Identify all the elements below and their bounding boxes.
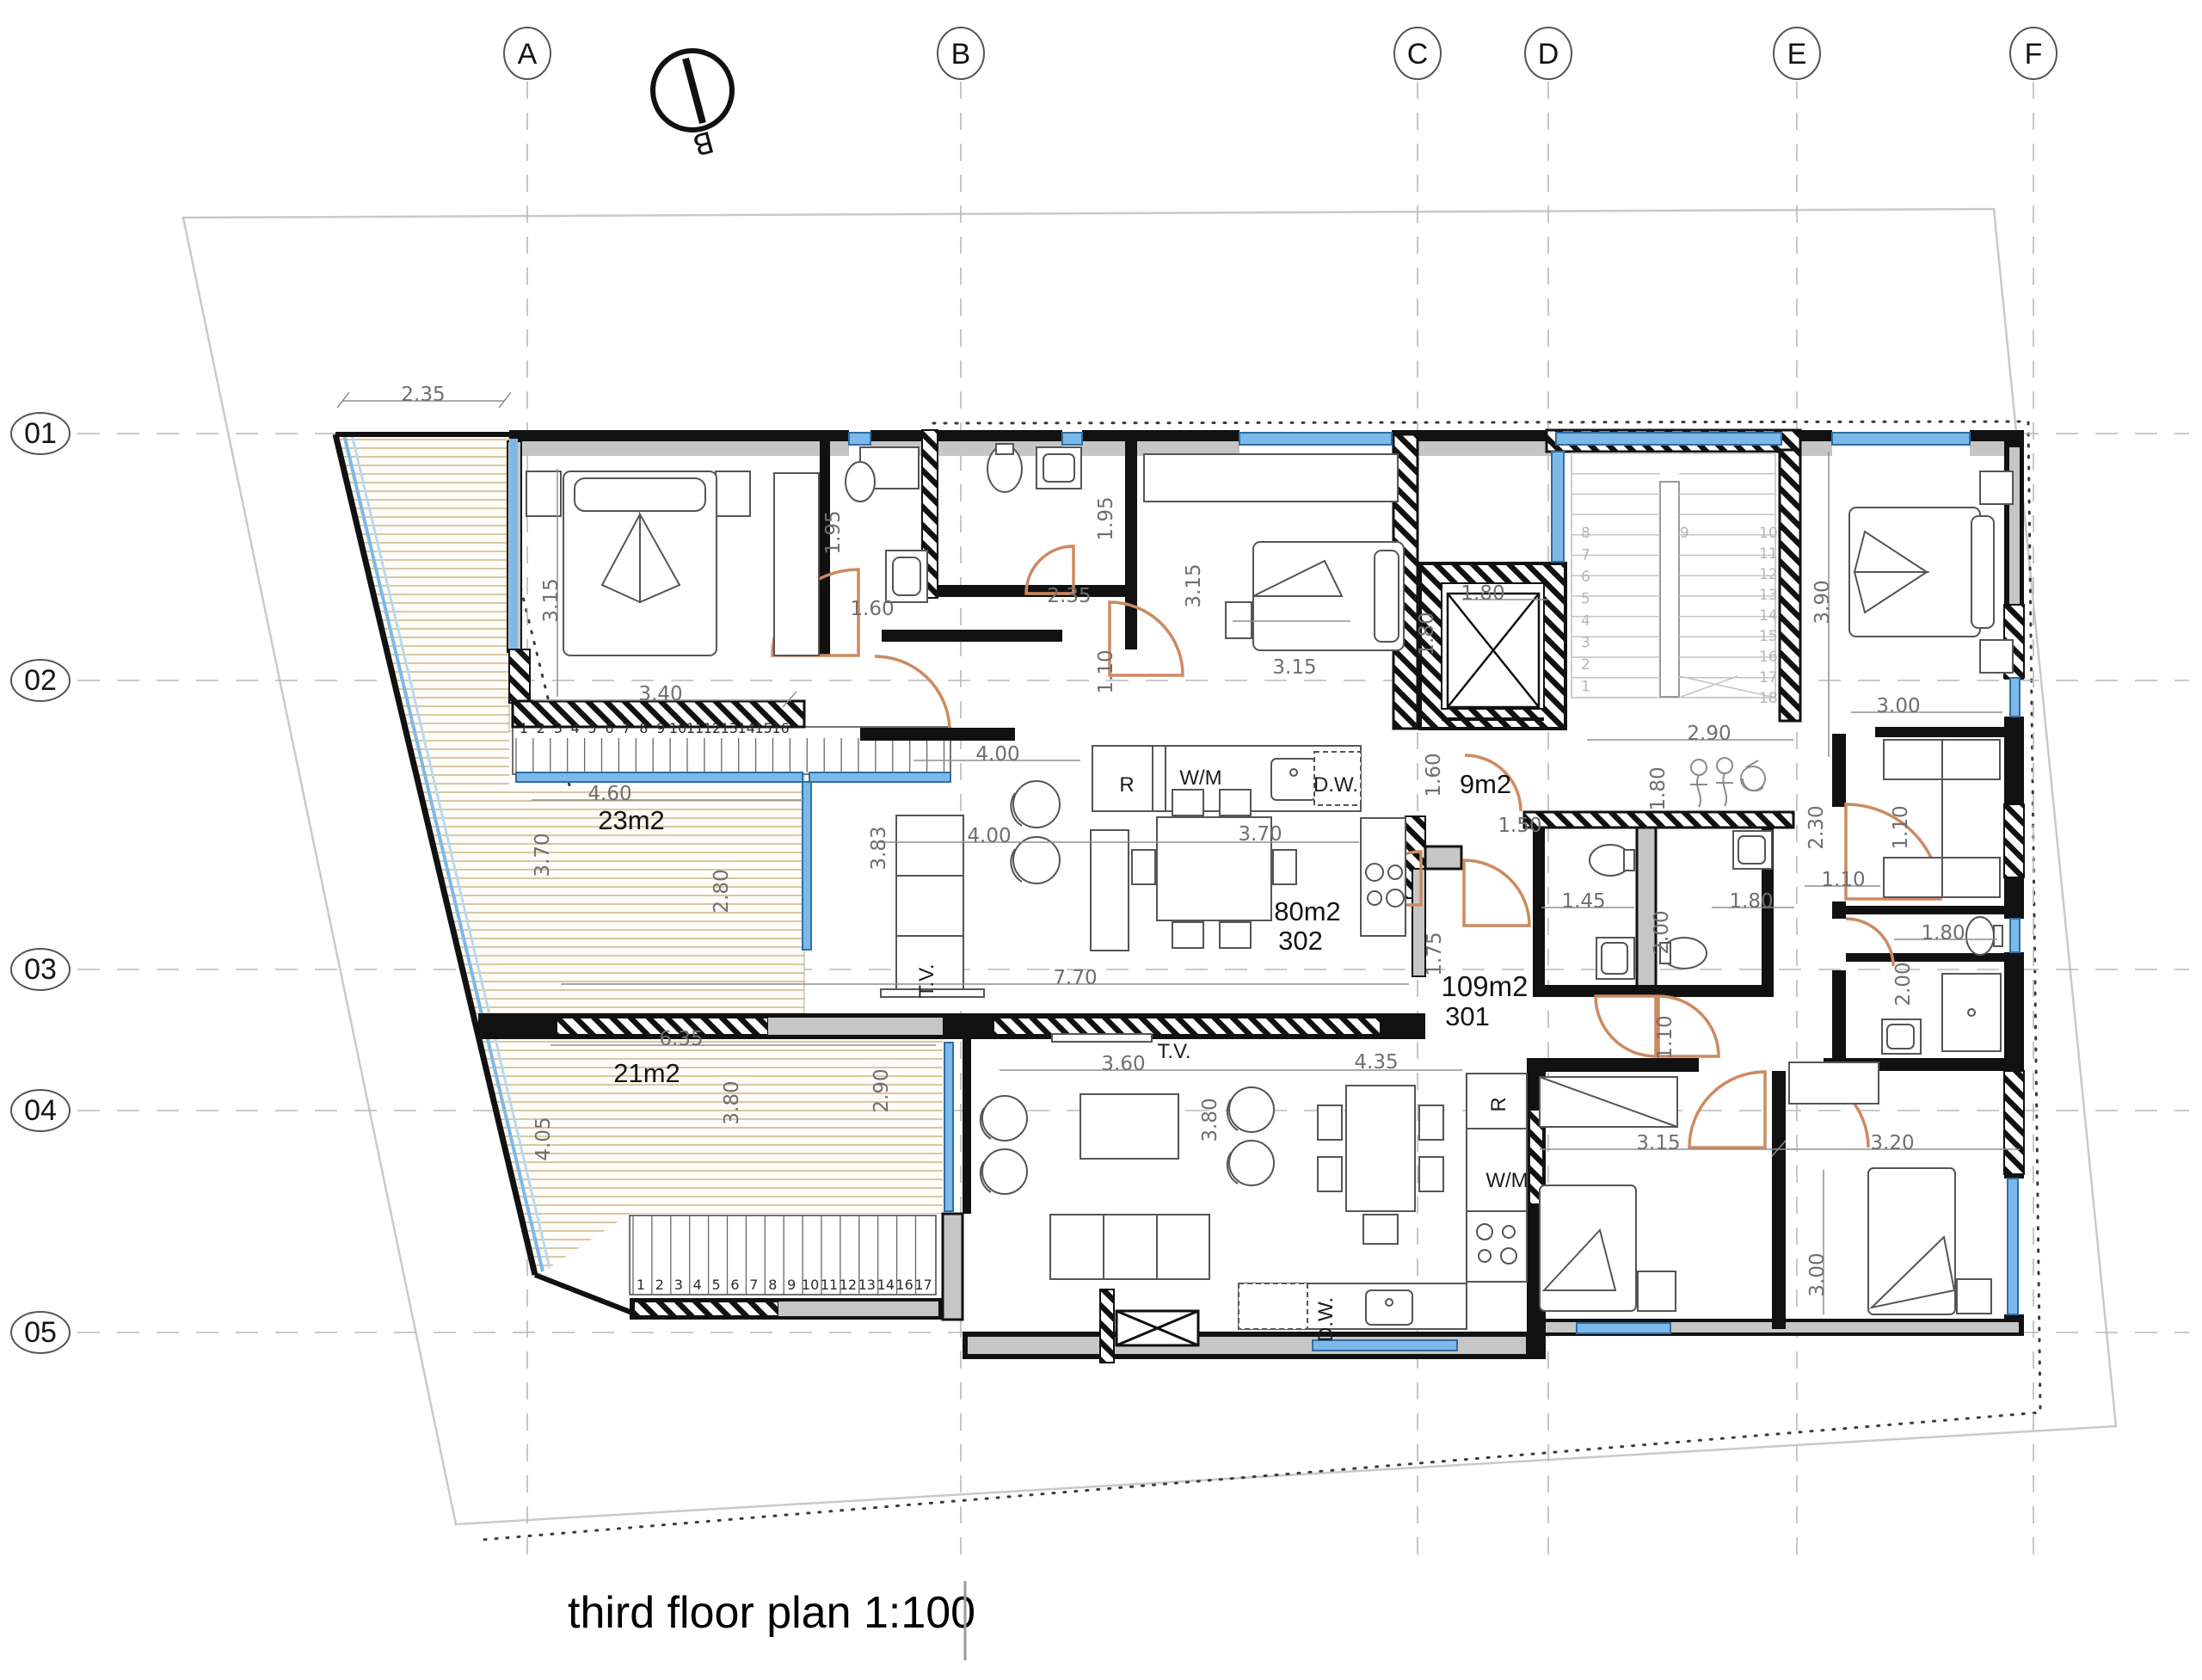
dimension-label: 6.35 xyxy=(659,1028,703,1050)
louvre-number: 2 xyxy=(655,1277,664,1293)
louvre-number: 5 xyxy=(712,1277,721,1293)
louvre-number: 17 xyxy=(914,1277,932,1293)
stair-number: 7 xyxy=(1581,547,1590,564)
dimension-label: 1.95 xyxy=(1095,496,1117,540)
louvre-number: 13 xyxy=(721,720,738,736)
stair-number: 9 xyxy=(1680,525,1689,542)
stair-number: 12 xyxy=(1759,566,1778,583)
stair-number: 2 xyxy=(1581,656,1590,674)
grid-col-label: E xyxy=(1787,38,1807,71)
service-shaft xyxy=(1116,1311,1198,1345)
room-label: 109m2 xyxy=(1442,970,1528,1002)
stair-number: 18 xyxy=(1759,690,1778,707)
grid-col-label: D xyxy=(1538,38,1559,71)
louvre-number: 10 xyxy=(802,1277,819,1293)
grid-row-label: 04 xyxy=(24,1094,57,1127)
north-label: B xyxy=(689,124,717,163)
stair-number: 11 xyxy=(1759,545,1778,563)
room-label: 9m2 xyxy=(1460,769,1511,799)
stair-number: 5 xyxy=(1581,591,1590,608)
accessibility-figures-icon xyxy=(1690,758,1765,807)
room-label: 23m2 xyxy=(598,805,665,835)
dimension-label: 1.80 xyxy=(1647,766,1670,810)
louvre-number: 3 xyxy=(554,720,563,736)
louvre-number: 16 xyxy=(895,1277,913,1293)
louvre-number: 7 xyxy=(749,1277,758,1293)
dimension-label: 1.60 xyxy=(1423,753,1445,797)
grid-col-label: B xyxy=(951,38,971,71)
louvre-number: 2 xyxy=(537,720,545,736)
dimension-label: 3.83 xyxy=(868,826,890,870)
dimension-label: 2.35 xyxy=(401,384,445,406)
dimension-label: 1.80 xyxy=(1921,922,1965,945)
louvre-number: 12 xyxy=(840,1277,857,1293)
louvre-number: 6 xyxy=(730,1277,739,1293)
stair-number: 17 xyxy=(1759,669,1778,686)
stair-number: 13 xyxy=(1759,587,1778,604)
dimension-label: 1.95 xyxy=(822,510,845,554)
dining302 xyxy=(1132,790,1296,948)
title-text: third floor plan 1:100 xyxy=(568,1588,975,1638)
louvre-number: 12 xyxy=(704,720,721,736)
dimension-label: 1.75 xyxy=(1424,932,1446,975)
stair-number: 16 xyxy=(1759,649,1778,666)
room-label: 80m2 xyxy=(1274,896,1341,926)
dimension-label: 2.35 xyxy=(1047,585,1091,607)
dimension-label: 3.15 xyxy=(540,578,563,622)
louvre-number: 16 xyxy=(772,720,789,736)
appliance-label: T.V. xyxy=(915,963,938,997)
bedroom-301-left xyxy=(1540,1077,1677,1311)
dimension-label: 3.15 xyxy=(1636,1132,1680,1154)
dimension-label: 1.10 xyxy=(1821,869,1865,891)
dimension-label: 2.80 xyxy=(710,869,733,913)
room-label: 302 xyxy=(1278,926,1323,956)
grid-row-label: 03 xyxy=(24,953,57,986)
dimension-label: 4.35 xyxy=(1354,1051,1398,1074)
appliance-label: R xyxy=(1119,773,1134,797)
dimension-label: 1.80 xyxy=(1461,582,1504,605)
appliance-label: D.W. xyxy=(1313,773,1358,797)
dimension-label: 2.90 xyxy=(1687,723,1731,745)
grid-col-label: F xyxy=(2025,38,2043,71)
louvre-number: 4 xyxy=(571,720,580,736)
grid-row-label: 05 xyxy=(24,1316,57,1349)
louvre-number: 4 xyxy=(693,1277,702,1293)
appliance-label: R xyxy=(1487,1097,1510,1111)
dining-lower xyxy=(1318,1086,1443,1244)
dimension-label: 3.00 xyxy=(1876,695,1920,717)
appliance-label: T.V. xyxy=(1157,1040,1190,1063)
stair-number: 15 xyxy=(1759,628,1778,645)
grid-col-label: A xyxy=(518,38,538,71)
louvre-number: 9 xyxy=(656,720,665,736)
dimension-label: 3.80 xyxy=(721,1080,743,1124)
louvre-number: 11 xyxy=(821,1277,838,1293)
dimension-label: 2.00 xyxy=(1892,962,1915,1006)
stair-number: 8 xyxy=(1581,525,1590,542)
dimension-label: 4.00 xyxy=(967,825,1011,847)
dimension-label: 1.10 xyxy=(1095,649,1117,693)
dimension-label: 4.60 xyxy=(587,783,631,805)
dimension-label: 3.15 xyxy=(1272,656,1316,679)
dimension-label: 1.60 xyxy=(850,598,894,620)
dimension-label: 4.00 xyxy=(975,743,1019,766)
louvre-number: 14 xyxy=(738,720,755,736)
louvre-number: 6 xyxy=(605,720,613,736)
stair-number: 6 xyxy=(1581,569,1590,586)
grid-row-label: 02 xyxy=(24,664,57,697)
dimension-label: 2.30 xyxy=(1805,805,1828,849)
stair-number: 4 xyxy=(1581,612,1590,630)
bedroomF-furniture xyxy=(1849,471,2013,673)
dimension-label: 4.05 xyxy=(532,1117,555,1160)
stair-number: 3 xyxy=(1581,635,1590,652)
dimension-label: 3.15 xyxy=(1183,563,1205,607)
louvre-number: 9 xyxy=(787,1277,796,1293)
louvre-number: 8 xyxy=(768,1277,777,1293)
louvre-number: 1 xyxy=(520,720,528,736)
dimension-label: 1.45 xyxy=(1561,890,1605,913)
dimension-label: 3.80 xyxy=(1199,1098,1221,1142)
louvre-number: 7 xyxy=(622,720,630,736)
dimension-label: 7.70 xyxy=(1053,967,1097,989)
dimension-label: 2.90 xyxy=(870,1068,893,1112)
stair-number: 10 xyxy=(1759,525,1778,542)
dimension-label: 1.10 xyxy=(1654,1015,1676,1059)
appliance-label: W/M xyxy=(1179,766,1221,790)
dimension-label: 1.50 xyxy=(1498,815,1541,837)
louvre-number: 5 xyxy=(588,720,597,736)
room-label: 21m2 xyxy=(613,1058,680,1088)
appliance-label: D.W. xyxy=(1314,1297,1338,1342)
dimension-label: 1.10 xyxy=(1890,805,1912,849)
dimension-label: 2.00 xyxy=(1651,910,1673,954)
dimension-label: 3.40 xyxy=(638,683,682,705)
dimension-label: 3.60 xyxy=(1101,1053,1145,1075)
drawing-title: third floor plan 1:100 xyxy=(568,1581,975,1660)
louvre-number: 8 xyxy=(639,720,648,736)
louvre-number: 1 xyxy=(637,1277,645,1293)
louvre-number: 13 xyxy=(858,1277,876,1293)
appliance-label: W/M xyxy=(1485,1169,1528,1192)
louvre-number: 10 xyxy=(669,720,686,736)
north-arrow-icon: B xyxy=(653,51,732,162)
grid-row-label: 01 xyxy=(24,417,57,450)
dimension-label: 1.80 xyxy=(1416,612,1438,655)
dimension-label: 3.90 xyxy=(1811,580,1834,624)
floor-plan-canvas: ABCDEF0102030405 2.353.153.401.951.602.3… xyxy=(0,0,2202,1680)
dimension-label: 1.80 xyxy=(1729,890,1773,913)
dimension-label: 3.00 xyxy=(1806,1252,1829,1296)
dimension-label: 3.70 xyxy=(1238,823,1282,846)
dimension-label: 3.70 xyxy=(532,833,554,877)
louvre-number: 14 xyxy=(877,1277,895,1293)
louvre-number: 11 xyxy=(686,720,704,736)
dimension-label: 3.20 xyxy=(1870,1132,1914,1154)
louvre-number: 15 xyxy=(754,720,772,736)
toilet-room-fixtures xyxy=(1966,917,2002,955)
grid-col-label: C xyxy=(1407,38,1429,71)
bedroom1-furniture xyxy=(526,471,819,655)
room-label: 301 xyxy=(1445,1001,1490,1031)
stair-number: 14 xyxy=(1759,607,1778,625)
louvre-number: 3 xyxy=(674,1277,683,1293)
stair-number: 1 xyxy=(1581,679,1590,696)
